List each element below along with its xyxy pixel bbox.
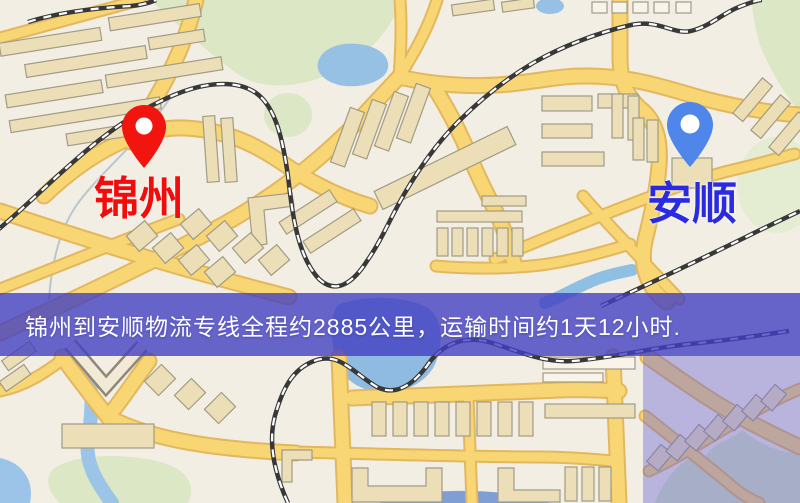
map-image: 锦州到安顺物流专线全程约2885公里，运输时间约1天12小时. 锦州 安顺 [0,0,800,503]
route-banner-text: 锦州到安顺物流专线全程约2885公里，运输时间约1天12小时. [0,308,681,342]
origin-pin [122,105,166,169]
origin-pin-icon [122,105,166,168]
destination-city-label: 安顺 [647,181,737,226]
map-graphic [0,0,800,503]
destination-pin-icon [667,102,713,167]
origin-city-label: 锦州 [94,176,184,221]
destination-pin [667,102,713,168]
route-banner: 锦州到安顺物流专线全程约2885公里，运输时间约1天12小时. [0,293,800,356]
